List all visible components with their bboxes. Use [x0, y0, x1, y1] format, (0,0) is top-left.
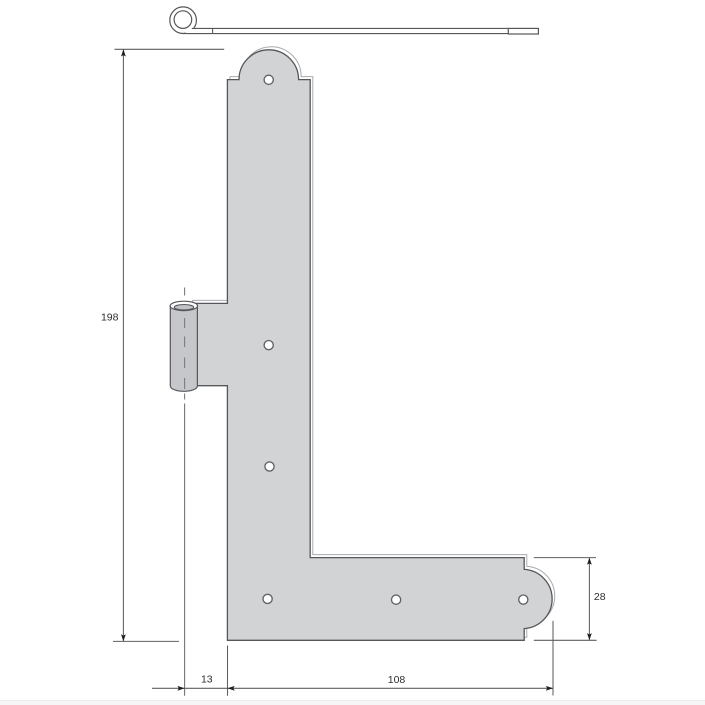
svg-text:198: 198: [101, 311, 119, 323]
svg-text:13: 13: [201, 673, 213, 685]
svg-text:108: 108: [388, 674, 406, 686]
svg-text:28: 28: [594, 591, 606, 603]
